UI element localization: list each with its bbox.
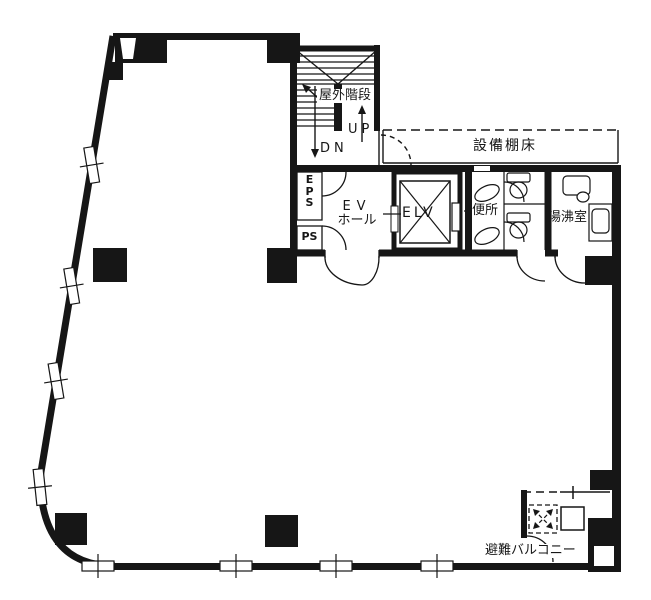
elevator-label: ELV	[402, 206, 436, 221]
escape-balcony-label: 避難バルコニー	[483, 544, 578, 558]
eps-door-swing	[322, 172, 346, 196]
ps-shaft-label: PS	[297, 231, 322, 243]
shelf-door-swing	[381, 135, 411, 165]
toilet-label: 便所	[472, 204, 498, 218]
floor-plan: 屋外階段 UP DN 設備棚床 E P S PS EV ホール ELV 便所 湯…	[0, 0, 651, 600]
water-closets	[504, 173, 530, 242]
balcony-equipment	[561, 507, 584, 530]
equipment-shelf-label: 設備棚床	[440, 139, 570, 154]
ev-hall-label-line2: ホール	[328, 214, 386, 228]
kitchenette-label: 湯沸室	[548, 211, 587, 225]
elevator-door	[391, 206, 398, 232]
hatch-arrowheads	[533, 509, 553, 529]
kitchenette-door-swing	[555, 256, 585, 283]
stairs-up-label: UP	[348, 123, 373, 137]
ev-hall-double-door	[325, 250, 379, 285]
eps-letter: E	[297, 174, 322, 186]
stairs-down-label: DN	[320, 142, 348, 156]
toilet-door-swing	[517, 256, 545, 281]
ev-hall-label: EV ホール	[328, 200, 386, 227]
toilet-room	[464, 172, 545, 281]
elevator-counterweight	[452, 203, 460, 231]
outdoor-stairs-label: 屋外階段	[317, 89, 373, 103]
eps-shaft-label: E P S	[297, 174, 322, 209]
ps-door-swing	[322, 226, 346, 250]
ev-hall-label-line1: EV	[328, 200, 386, 214]
column-notches	[120, 38, 614, 566]
eps-letter: S	[297, 197, 322, 209]
windows	[26, 145, 453, 578]
